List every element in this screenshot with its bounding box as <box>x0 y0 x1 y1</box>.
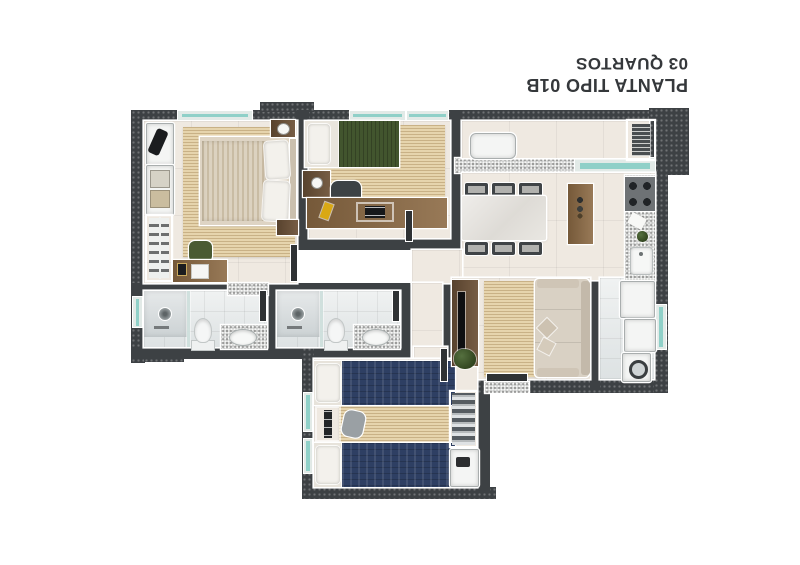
window-laundry <box>656 305 666 349</box>
kitchen-plant <box>637 231 648 242</box>
bedroom2-pillow <box>308 124 330 164</box>
master-bed-duvet <box>202 141 266 221</box>
plan-title-line1: PLANTA TIPO 01B <box>516 74 688 96</box>
floor-plan <box>125 95 690 505</box>
sideboard-dishes <box>573 195 587 221</box>
bedroom3-pillow-a <box>316 364 340 402</box>
bedroom3-nightstand <box>316 407 340 441</box>
master-desk-frame <box>177 263 187 276</box>
master-lamp <box>277 123 290 135</box>
master-closet-basket-2 <box>150 190 170 208</box>
master-nightstand-2 <box>277 220 298 235</box>
laundry-washer <box>622 353 651 382</box>
bedroom2-duvet <box>339 121 399 167</box>
master-bed-headboard <box>290 139 296 223</box>
dining-chair-6 <box>519 242 542 255</box>
bathroom1-door-leaf <box>260 291 266 321</box>
laundry-appliance-1 <box>620 281 655 318</box>
master-closet-basket-1 <box>150 170 170 188</box>
wall-right <box>654 173 668 393</box>
bedroom3-shelf-item <box>456 457 470 467</box>
window-bedroom2-b <box>407 111 448 120</box>
wall-corner-top-right <box>649 108 689 175</box>
wall-laundry-divider <box>590 280 600 390</box>
plan-title-line2: 03 QUARTOS <box>516 52 688 74</box>
dining-chair-3 <box>519 183 542 196</box>
dining-chair-1 <box>465 183 488 196</box>
laundry-appliance-2 <box>624 319 656 352</box>
window-bedroom2-a <box>350 111 405 120</box>
bedroom3-door-leaf <box>441 349 447 381</box>
bathroom1-toilet-tank <box>192 341 214 350</box>
sofa-armrest-top <box>537 279 579 288</box>
balcony-glass-window <box>575 158 655 173</box>
entry-door-leaf <box>487 374 527 381</box>
bathroom2-shower-glass <box>320 291 323 347</box>
master-desk-papers <box>191 264 209 279</box>
bedroom3-duvet-a <box>342 361 455 405</box>
tv-screen <box>458 292 465 352</box>
bedroom2-door-leaf <box>406 211 412 241</box>
dining-chair-5 <box>492 242 515 255</box>
wall-bedroom3-bottom <box>302 487 496 499</box>
bathroom2-toilet-tank <box>325 341 347 350</box>
bathroom2-toilet <box>328 319 344 342</box>
window-bathroom1 <box>133 297 142 327</box>
window-master <box>178 111 252 120</box>
master-armchair <box>189 241 212 262</box>
master-closet-shoe-rack <box>146 215 172 281</box>
kitchen-cooktop <box>625 177 655 211</box>
kitchen-sink <box>630 247 653 275</box>
master-pillow-1 <box>264 140 291 180</box>
bedroom2-lamp <box>311 177 323 189</box>
bathroom1-shower-glass <box>187 291 190 347</box>
plan-title: PLANTA TIPO 01B 03 QUARTOS <box>516 50 688 96</box>
balcony-grill <box>627 120 655 160</box>
master-pillow-2 <box>262 180 290 221</box>
wall-bath-divider <box>267 291 277 349</box>
living-plant <box>454 349 476 369</box>
bathroom1-drain <box>158 307 172 321</box>
balcony-appliance <box>470 133 516 159</box>
bathroom2-faucet <box>287 326 302 329</box>
bathroom1-faucet <box>154 326 169 329</box>
floor-plan-page: PLANTA TIPO 01B 03 QUARTOS <box>0 0 800 565</box>
window-bedroom3-a <box>304 393 312 431</box>
bedroom3-duvet-b <box>342 443 455 487</box>
bedroom2-laptop <box>357 203 393 221</box>
bathroom2-door-leaf <box>393 291 399 321</box>
sofa-back <box>581 281 590 375</box>
bathroom2-sink <box>362 329 390 346</box>
dining-table <box>462 196 546 240</box>
wall-bedroom2-bottom <box>297 238 462 250</box>
window-bedroom3-b <box>304 439 312 473</box>
entry-threshold <box>485 382 529 393</box>
bathroom1-toilet <box>195 319 211 342</box>
living-rug <box>484 281 542 377</box>
dining-chair-4 <box>465 242 488 255</box>
bathroom2-drain <box>291 307 305 321</box>
bedroom3-shelf <box>450 449 479 487</box>
dining-chair-2 <box>492 183 515 196</box>
bathroom1-sink <box>229 329 257 346</box>
master-door-leaf <box>291 245 297 281</box>
sofa-armrest-bottom <box>537 368 579 377</box>
bedroom3-wardrobe <box>450 391 477 447</box>
wall-bedroom2-right <box>450 110 462 250</box>
wall-balcony-counter <box>455 158 575 173</box>
bedroom3-pillow-b <box>316 446 340 484</box>
